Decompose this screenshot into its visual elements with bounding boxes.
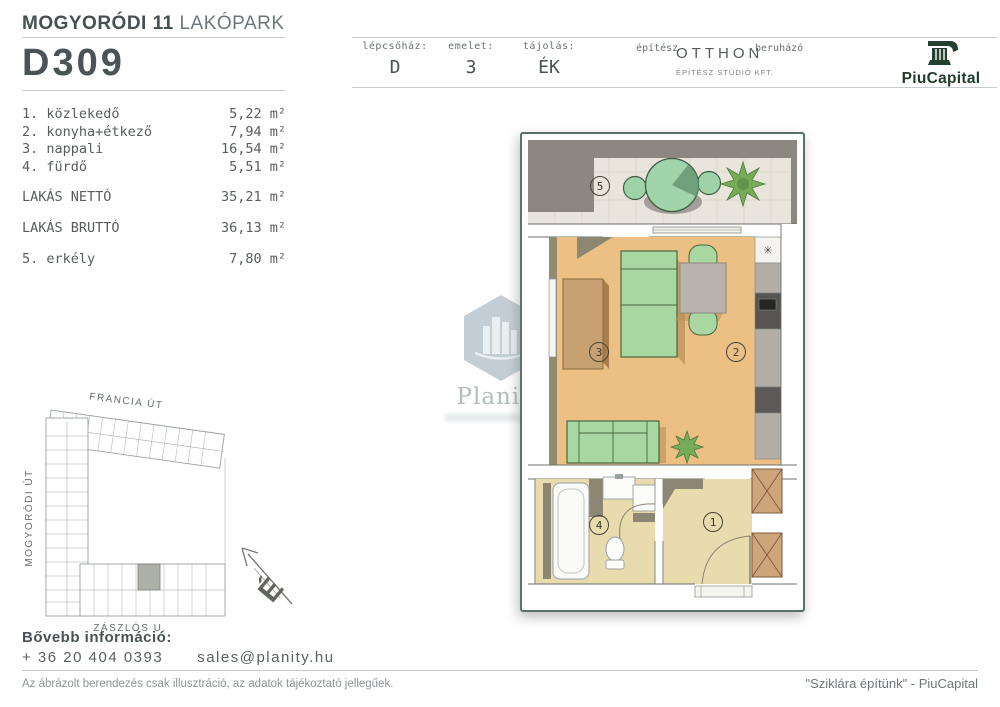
net-area-row: LAKÁS NETTÓ35,21 m² xyxy=(22,189,286,207)
room-name: 2. konyha+étkező xyxy=(22,124,152,142)
info-staircase: lépcsőház: D xyxy=(350,41,440,78)
net-label: LAKÁS NETTÓ xyxy=(22,189,111,207)
floor-plan: ✳ xyxy=(515,127,810,622)
footer-info-title: Bővebb információ: xyxy=(22,629,172,646)
room-row: 2. konyha+étkező7,94 m² xyxy=(22,124,286,142)
room-marker-kitchen: 2 xyxy=(726,342,746,362)
project-title: MOGYORÓDI 11 LAKÓPARK xyxy=(22,13,285,35)
balcony-chair-icon xyxy=(624,177,647,200)
info-floor: emelet: 3 xyxy=(430,41,512,78)
room-name: 1. közlekedő xyxy=(22,106,120,124)
balcony-name: 5. erkély xyxy=(22,251,95,269)
room-row: 1. közlekedő5,22 m² xyxy=(22,106,286,124)
room-area: 5,51 m² xyxy=(229,159,286,177)
room-row: 3. nappali16,54 m² xyxy=(22,141,286,159)
unit-code: D309 xyxy=(22,42,125,85)
orientation-value: ÉK xyxy=(508,57,590,78)
sink-icon xyxy=(603,477,635,499)
divider xyxy=(22,670,978,671)
developer-logo: PiuCapital xyxy=(898,39,984,88)
highlighted-unit xyxy=(138,564,160,590)
street-left-label: MOGYORÓDI ÚT xyxy=(22,469,35,566)
hob-symbol-icon: ✳ xyxy=(763,245,772,257)
balcony-row: 5. erkély7,80 m² xyxy=(22,251,286,269)
developer-slogan: "Sziklára építünk" - PiuCapital xyxy=(805,676,978,691)
footer-contact: + 36 20 404 0393sales@planity.hu xyxy=(22,649,369,666)
entrance-threshold xyxy=(695,586,752,597)
compass-letter: É xyxy=(251,571,290,608)
north-compass: É xyxy=(228,540,308,625)
room-marker-hall: 1 xyxy=(703,512,723,532)
room-area: 5,22 m² xyxy=(229,106,286,124)
architect-subtitle: ÉPÍTÉSZ STÚDIÓ KFT. xyxy=(676,68,752,77)
divider xyxy=(22,37,285,38)
room-name: 3. nappali xyxy=(22,141,103,159)
street-top-label: FRANCIA ÚT xyxy=(89,390,164,412)
room-marker-bath: 4 xyxy=(589,515,609,535)
room-area: 7,94 m² xyxy=(229,124,286,142)
kitchen-counter xyxy=(755,237,781,459)
flat-datasheet-page: MOGYORÓDI 11 LAKÓPARK D309 lépcsőház: D … xyxy=(0,0,1000,707)
floor-value: 3 xyxy=(430,57,512,78)
room-area: 16,54 m² xyxy=(221,141,286,159)
disclaimer-text: Az ábrázolt berendezés csak illusztráció… xyxy=(22,678,393,690)
project-title-bold: MOGYORÓDI 11 xyxy=(22,13,174,34)
gross-area: 36,13 m² xyxy=(221,220,286,238)
balcony-area: 7,80 m² xyxy=(229,251,286,269)
room-marker-living: 3 xyxy=(589,342,609,362)
developer-name: PiuCapital xyxy=(898,70,984,88)
orientation-label: tájolás: xyxy=(508,41,590,52)
gross-area-row: LAKÁS BRUTTÓ36,13 m² xyxy=(22,220,286,238)
architect-logo: OTTHON ÉPÍTÉSZ STÚDIÓ KFT. xyxy=(676,45,752,77)
radiator-icon xyxy=(549,279,556,357)
divider xyxy=(352,37,997,38)
shower-icon xyxy=(633,485,655,511)
plant-icon xyxy=(671,431,703,463)
site-location-map: FRANCIA ÚT MOGYORÓDI ÚT ZÁSZLÓS U. xyxy=(18,388,233,636)
floor-label: emelet: xyxy=(430,41,512,52)
room-row: 4. fürdő5,51 m² xyxy=(22,159,286,177)
room-list: 1. közlekedő5,22 m² 2. konyha+étkező7,94… xyxy=(22,106,286,269)
project-title-light: LAKÓPARK xyxy=(179,13,284,34)
net-area: 35,21 m² xyxy=(221,189,286,207)
balcony-zone xyxy=(528,140,797,224)
staircase-value: D xyxy=(350,57,440,78)
balcony-chair-icon xyxy=(698,172,721,195)
piucapital-column-icon xyxy=(921,39,961,69)
architect-label: építész xyxy=(636,43,678,54)
gross-label: LAKÁS BRUTTÓ xyxy=(22,220,120,238)
phone-number: + 36 20 404 0393 xyxy=(22,649,163,666)
staircase-label: lépcsőház: xyxy=(350,41,440,52)
info-orientation: tájolás: ÉK xyxy=(508,41,590,78)
toilet-icon xyxy=(606,537,624,561)
building-outline xyxy=(46,410,225,616)
room-marker-balcony: 5 xyxy=(590,176,610,196)
divider xyxy=(22,90,285,91)
bed-icon xyxy=(621,251,677,357)
living-kitchen-zone: ✳ xyxy=(549,224,797,465)
architect-name: OTTHON xyxy=(676,45,752,62)
developer-label: beruházó xyxy=(755,43,803,54)
room-name: 4. fürdő xyxy=(22,159,87,177)
dining-table-icon xyxy=(680,263,726,313)
email-address: sales@planity.hu xyxy=(197,649,334,666)
